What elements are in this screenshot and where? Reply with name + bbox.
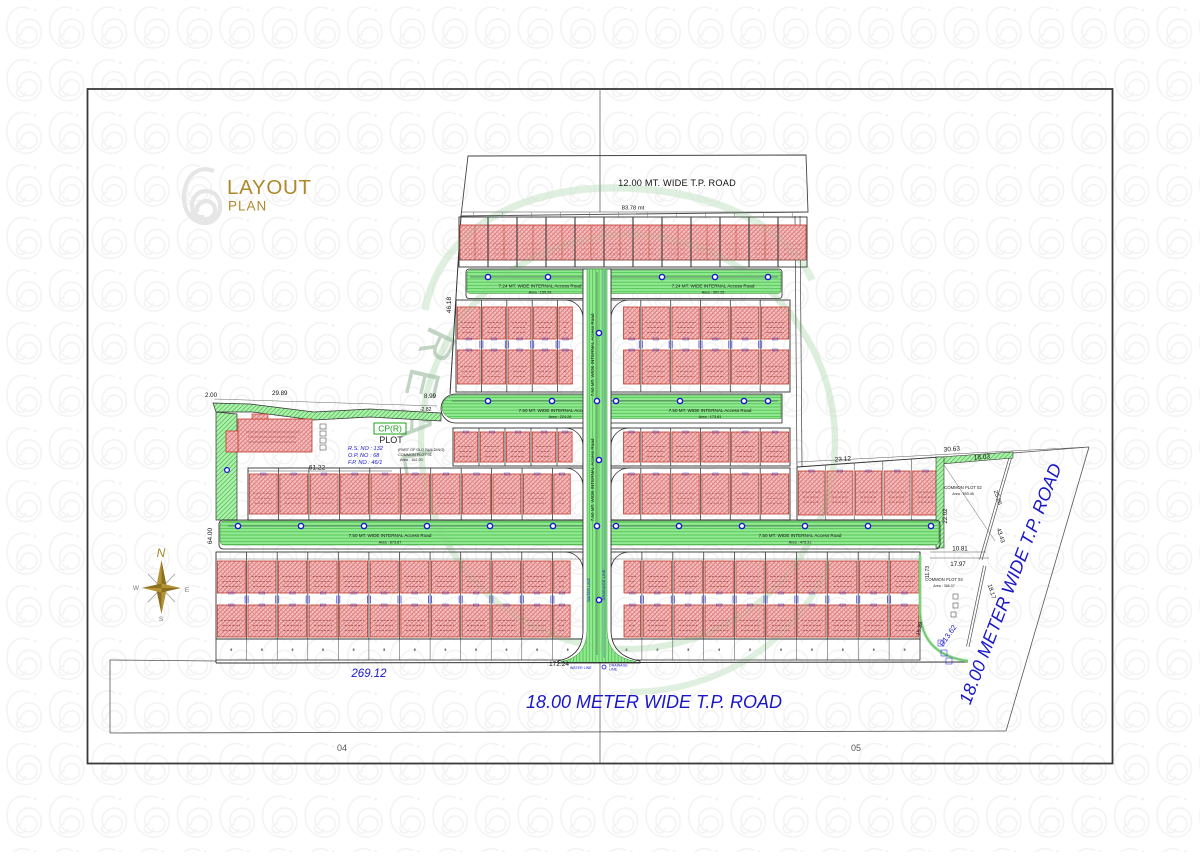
svg-text:DRAINAGE LINE: DRAINAGE LINE: [601, 569, 606, 600]
svg-text:Area : 873.87: Area : 873.87: [379, 541, 402, 545]
svg-text:7.24 MT. WIDE INTERNAL Access: 7.24 MT. WIDE INTERNAL Access Road: [499, 284, 582, 289]
svg-text:83.78 mt: 83.78 mt: [622, 206, 645, 212]
svg-text:22.02: 22.02: [943, 508, 949, 524]
svg-text:Area : 173.81: Area : 173.81: [699, 415, 722, 419]
svg-text:W: W: [133, 585, 140, 592]
svg-text:7.50 MT. WIDE INTERNAL Access: 7.50 MT. WIDE INTERNAL Access Road: [349, 533, 432, 538]
svg-text:7.50 MT. WIDE INTERNAL Access: 7.50 MT. WIDE INTERNAL Access Road: [590, 313, 595, 396]
svg-text:7.50 MT. WIDE INTERNAL Access: 7.50 MT. WIDE INTERNAL Access Road: [759, 533, 842, 538]
svg-text:CP(R): CP(R): [378, 424, 402, 434]
svg-text:18.03: 18.03: [974, 453, 991, 461]
svg-text:COMMON PLOT 02: COMMON PLOT 02: [944, 485, 982, 490]
svg-text:O.P. NO : 68: O.P. NO : 68: [348, 453, 380, 459]
svg-text:46.18: 46.18: [446, 296, 453, 313]
svg-text:COMMON PLOT 01: COMMON PLOT 01: [398, 453, 432, 457]
svg-text:Area : 366.07: Area : 366.07: [933, 584, 955, 588]
svg-text:PLAN: PLAN: [228, 199, 267, 214]
svg-text:05: 05: [851, 743, 861, 753]
svg-text:N: N: [157, 546, 166, 560]
svg-text:18.00 METER WIDE T.P. ROAD: 18.00 METER WIDE T.P. ROAD: [526, 692, 782, 712]
svg-text:2.00: 2.00: [205, 392, 218, 399]
svg-text:Area : 307.25: Area : 307.25: [702, 291, 725, 295]
svg-text:LAYOUT: LAYOUT: [227, 176, 312, 199]
svg-text:30.63: 30.63: [944, 445, 961, 453]
svg-text:269.12: 269.12: [350, 668, 387, 680]
svg-text:172.24: 172.24: [549, 661, 569, 668]
svg-text:64.00: 64.00: [207, 527, 214, 544]
svg-text:Area : 155.28: Area : 155.28: [529, 291, 552, 295]
svg-text:7.50 MT. WIDE INTERNAL Access: 7.50 MT. WIDE INTERNAL Access Road: [669, 408, 752, 413]
svg-text:LINE: LINE: [609, 668, 618, 672]
svg-text:PLOT: PLOT: [379, 435, 403, 445]
svg-text:7.50 MT. WIDE INTERNAL Access: 7.50 MT. WIDE INTERNAL Access Road: [590, 438, 595, 521]
svg-text:E: E: [185, 587, 190, 594]
svg-text:17.97: 17.97: [950, 561, 966, 568]
svg-text:COMMON PLOT 03: COMMON PLOT 03: [925, 577, 963, 582]
svg-text:Area : 224.28: Area : 224.28: [549, 415, 572, 419]
svg-text:R.S. NO : 132: R.S. NO : 132: [348, 446, 384, 452]
svg-text:7.24 MT. WIDE INTERNAL Access: 7.24 MT. WIDE INTERNAL Access Road: [672, 284, 755, 289]
svg-text:11.73: 11.73: [925, 566, 931, 578]
svg-text:04: 04: [337, 743, 347, 753]
svg-text:10.81: 10.81: [952, 546, 968, 553]
svg-text:29.89: 29.89: [272, 390, 288, 397]
svg-text:S: S: [159, 616, 164, 623]
svg-text:WATER LINE: WATER LINE: [586, 578, 591, 602]
svg-text:F.P. NO : 46/1: F.P. NO : 46/1: [348, 460, 382, 466]
svg-text:Area : 593.45: Area : 593.45: [952, 492, 974, 496]
svg-text:WATER LINE: WATER LINE: [570, 666, 592, 670]
